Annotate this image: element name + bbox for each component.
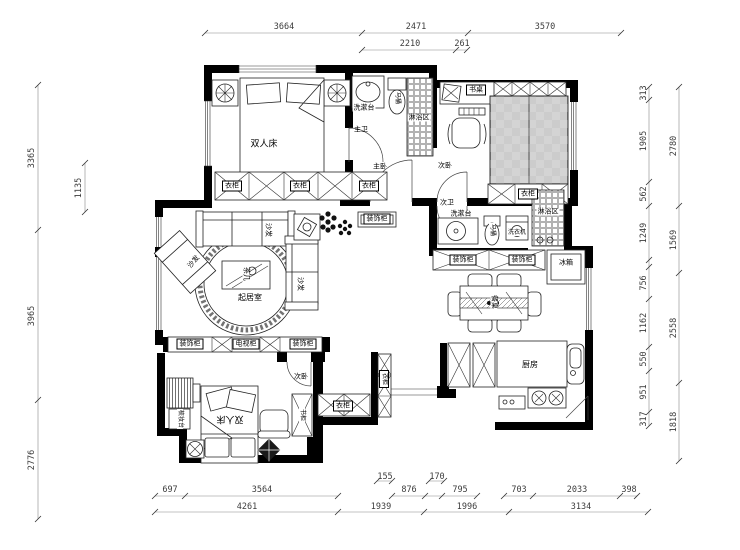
label-wardrobe-m3: 衣柜	[359, 181, 379, 192]
label-deco-cabinet-1: 装饰柜	[450, 255, 477, 266]
label-deco-cabinet-2: 装饰柜	[509, 255, 536, 266]
dim-right-2780: 2780	[670, 136, 679, 156]
dim-bot-1996: 1996	[457, 503, 477, 512]
kitchen-fixtures	[448, 341, 588, 420]
label-deco-cabinet-tv-left: 装饰柜	[177, 339, 204, 350]
label-dressing-table: 梳妆台	[177, 409, 183, 429]
dim-bot-1939: 1939	[371, 503, 391, 512]
dim-right-550: 550	[640, 351, 649, 366]
label-dining-table: 餐桌	[491, 294, 498, 310]
chair2-shape	[260, 410, 288, 434]
living-room-furniture	[154, 211, 396, 352]
dim-right-1818: 1818	[670, 412, 679, 432]
label-desk: 书桌	[466, 85, 486, 96]
label-tea-table: 茶几	[243, 266, 250, 282]
label-deco-cabinet-hall: 装饰柜	[364, 214, 391, 225]
dim-left-2776: 2776	[28, 450, 37, 470]
label-toilet-second: 马桶	[489, 223, 495, 237]
dim-bot-697: 697	[162, 486, 177, 495]
dim-right-1569: 1569	[670, 230, 679, 250]
dim-left-3365: 3365	[28, 148, 37, 168]
dim-right-1905: 1905	[640, 131, 649, 151]
fridge-shape	[547, 250, 585, 284]
label-shower-second: 淋浴区	[537, 209, 560, 216]
label-toilet-master: 马桶	[394, 91, 400, 105]
dim-bot-3564: 3564	[252, 486, 272, 495]
dim-left-3965: 3965	[28, 306, 37, 326]
dim-top-2471: 2471	[406, 23, 426, 32]
label-wardrobe-hall-h: 衣柜	[333, 401, 353, 412]
room-label-kitchen: 厨房	[522, 361, 538, 369]
dim-right-2558: 2558	[670, 318, 679, 338]
label-washbasin-master: 洗漱台	[353, 105, 376, 112]
dim-bot-876: 876	[401, 486, 416, 495]
dim-top-3570: 3570	[535, 23, 555, 32]
dim-bot-3134: 3134	[571, 503, 591, 512]
dim-top-261: 261	[454, 40, 469, 49]
label-tv-cabinet: 电视柜	[233, 339, 260, 350]
room-label-living: 起居室	[238, 294, 262, 302]
label-double-bed: 双人床	[250, 140, 277, 149]
label-deco-cabinet-tv-right: 装饰柜	[290, 339, 317, 350]
dim-bot-2033: 2033	[567, 486, 587, 495]
dressing-table-shape	[167, 378, 193, 408]
label-fridge: 冰箱	[559, 260, 573, 267]
label-wardrobe-hall-v: 衣柜	[379, 370, 389, 388]
label-sofa-right: 沙发	[297, 276, 304, 292]
plant2-icon	[338, 220, 352, 235]
dim-bot-398: 398	[621, 486, 636, 495]
floor-plan-canvas: 主卫 主卧 次卧 次卫 起居室 次卧 厨房 双人床 洗漱台 淋浴区 马桶 书桌 …	[0, 0, 740, 550]
kitchen-sink-shape	[567, 344, 584, 384]
plant-icon	[319, 211, 336, 232]
label-wardrobe-m2: 衣柜	[290, 181, 310, 192]
label-washing-machine: 洗衣机	[507, 230, 527, 236]
dim-bot-4261: 4261	[237, 503, 257, 512]
dim-right-756: 756	[640, 275, 649, 290]
stove-shape	[528, 388, 566, 408]
room-label-second-bedroom-2: 次卧	[294, 374, 308, 381]
sofa-right-shape	[286, 242, 318, 304]
room-label-master-bedroom: 主卧	[373, 164, 387, 171]
second-bedroom-furniture	[440, 82, 568, 204]
room-label-second-bedroom: 次卧	[438, 163, 452, 170]
label-wardrobe-m1: 衣柜	[222, 181, 242, 192]
floor-plan-drawing	[0, 0, 740, 550]
dim-right-562: 562	[640, 186, 649, 201]
room-label-second-bath: 次卫	[440, 200, 454, 207]
dim-bot-170: 170	[429, 473, 444, 482]
end-table-shape	[294, 214, 320, 240]
dim-right-1162: 1162	[640, 313, 649, 333]
dim-right-951: 951	[640, 384, 649, 399]
sofa-top-shape	[202, 212, 288, 246]
dim-left-1135: 1135	[75, 178, 84, 198]
dim-top-3664: 3664	[274, 23, 294, 32]
dim-top-2210: 2210	[400, 40, 420, 49]
dim-bot-155: 155	[377, 473, 392, 482]
dim-right-317: 317	[640, 411, 649, 426]
label-wardrobe-study: 衣柜	[518, 189, 538, 200]
dim-right-1249: 1249	[640, 223, 649, 243]
chair-shape	[452, 118, 480, 148]
label-washbasin-second: 洗漱台	[450, 211, 473, 218]
dim-right-313: 313	[640, 85, 649, 100]
dim-bot-703: 703	[511, 486, 526, 495]
room-label-master-bath: 主卫	[354, 127, 368, 134]
label-shower-master: 淋浴区	[408, 115, 431, 122]
label-bookcase: 书柜	[299, 408, 305, 422]
label-sofa-top: 沙发	[265, 222, 272, 238]
dim-bot-795: 795	[452, 486, 467, 495]
label-double-bed-2: 双人床	[216, 415, 243, 424]
